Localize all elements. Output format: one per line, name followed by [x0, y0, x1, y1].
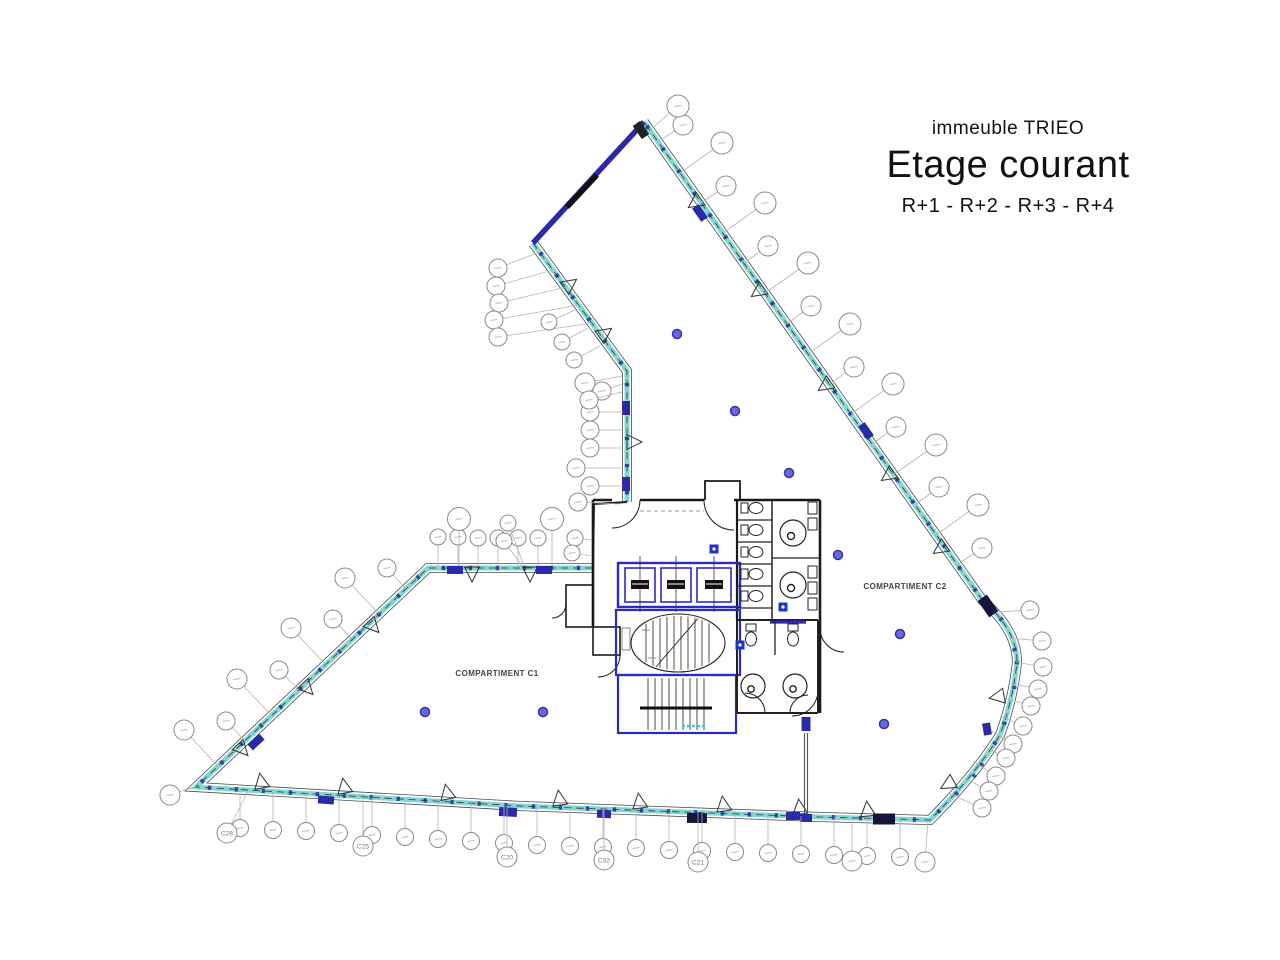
jog-wall	[593, 502, 627, 566]
callout-label: C32	[598, 857, 610, 864]
callout-label: C25	[357, 843, 369, 850]
callout-label: C20	[501, 854, 513, 861]
restroom-upper	[737, 500, 820, 620]
compartment-wall	[805, 733, 808, 816]
ceiling-dot	[896, 630, 905, 639]
compartment-c1-label: COMPARTIMENT C1	[455, 669, 538, 678]
elevator-bank	[618, 556, 740, 612]
restroom-lower	[737, 620, 818, 713]
stair-lower	[618, 675, 736, 733]
stair-oval	[616, 610, 740, 675]
ceiling-dot	[539, 708, 548, 717]
ceiling-dot	[731, 407, 740, 416]
compartment-c2-label: COMPARTIMENT C2	[863, 582, 946, 591]
ceiling-dot	[421, 708, 430, 717]
ceiling-dot	[834, 551, 843, 560]
floor-plan-page: C28C25C20C32C21 COMPARTIMENT C1 COMPARTI…	[0, 0, 1280, 960]
floor-levels: R+1 - R+2 - R+3 - R+4	[848, 195, 1168, 218]
ceiling-dot	[673, 330, 682, 339]
core-block	[552, 481, 844, 716]
callout-label: C28	[221, 830, 233, 837]
callout-label: C21	[692, 859, 704, 866]
drawing-title: Etage courant	[848, 144, 1168, 187]
title-block: immeuble TRIEO Etage courant R+1 - R+2 -…	[848, 118, 1168, 218]
facade-band	[196, 122, 1017, 820]
ceiling-dot	[785, 469, 794, 478]
building-name: immeuble TRIEO	[848, 118, 1168, 140]
ceiling-dot	[880, 720, 889, 729]
navy-wall	[533, 122, 644, 243]
